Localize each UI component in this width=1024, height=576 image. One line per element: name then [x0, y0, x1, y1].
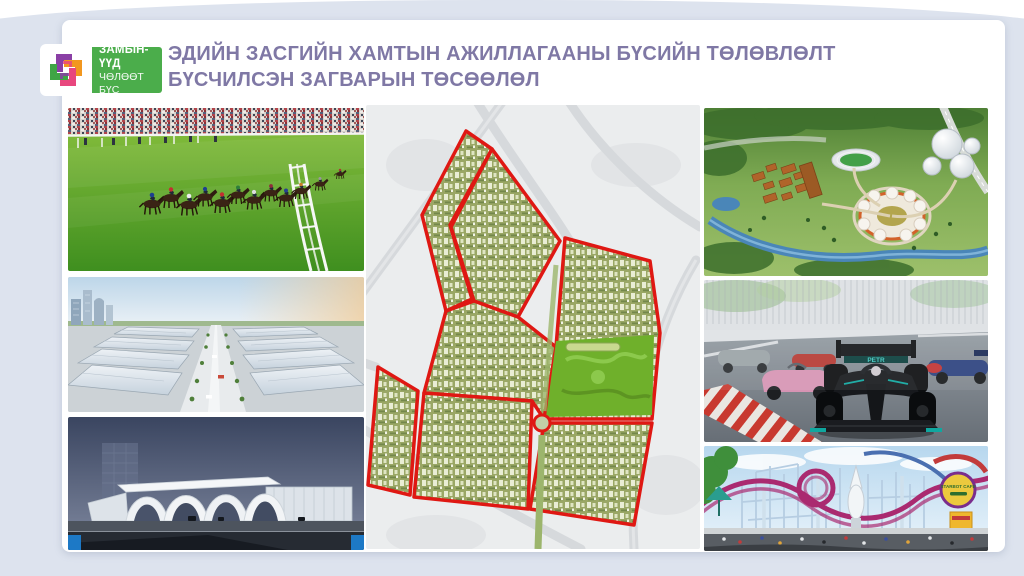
resort-complex-image	[704, 108, 988, 276]
amusement-park-image: STARBOT CAFE	[704, 446, 988, 551]
formula1-image: PETR	[704, 280, 988, 442]
logo-subtitle: ЧӨЛӨӨТ БҮС	[99, 71, 162, 97]
free-zone-logo: ЗАМЫН-ҮҮД ЧӨЛӨӨТ БҮС	[40, 44, 162, 96]
park-sign-text: STARBOT CAFE	[941, 484, 976, 489]
exhibition-center-image	[68, 417, 364, 550]
knot-logo-icon	[44, 48, 88, 92]
logo-icon-box	[40, 44, 92, 96]
logo-text-badge: ЗАМЫН-ҮҮД ЧӨЛӨӨТ БҮС	[92, 47, 162, 93]
industrial-park-image	[68, 277, 364, 412]
slide-title: ЭДИЙН ЗАСГИЙН ХАМТЫН АЖИЛЛАГААНЫ БҮСИЙН …	[168, 41, 888, 93]
slide-title-line2: БҮСЧИЛСЭН ЗАГВАРЫН ТӨСӨӨЛӨЛ	[168, 67, 888, 93]
logo-title: ЗАМЫН-ҮҮД	[99, 43, 162, 71]
presentation-slide: ЗАМЫН-ҮҮД ЧӨЛӨӨТ БҮС ЭДИЙН ЗАСГИЙН ХАМТЫ…	[0, 0, 1024, 576]
slide-title-line1: ЭДИЙН ЗАСГИЙН ХАМТЫН АЖИЛЛАГААНЫ БҮСИЙН …	[168, 41, 888, 67]
horse-racing-image	[68, 108, 364, 271]
master-plan-map	[366, 105, 700, 549]
